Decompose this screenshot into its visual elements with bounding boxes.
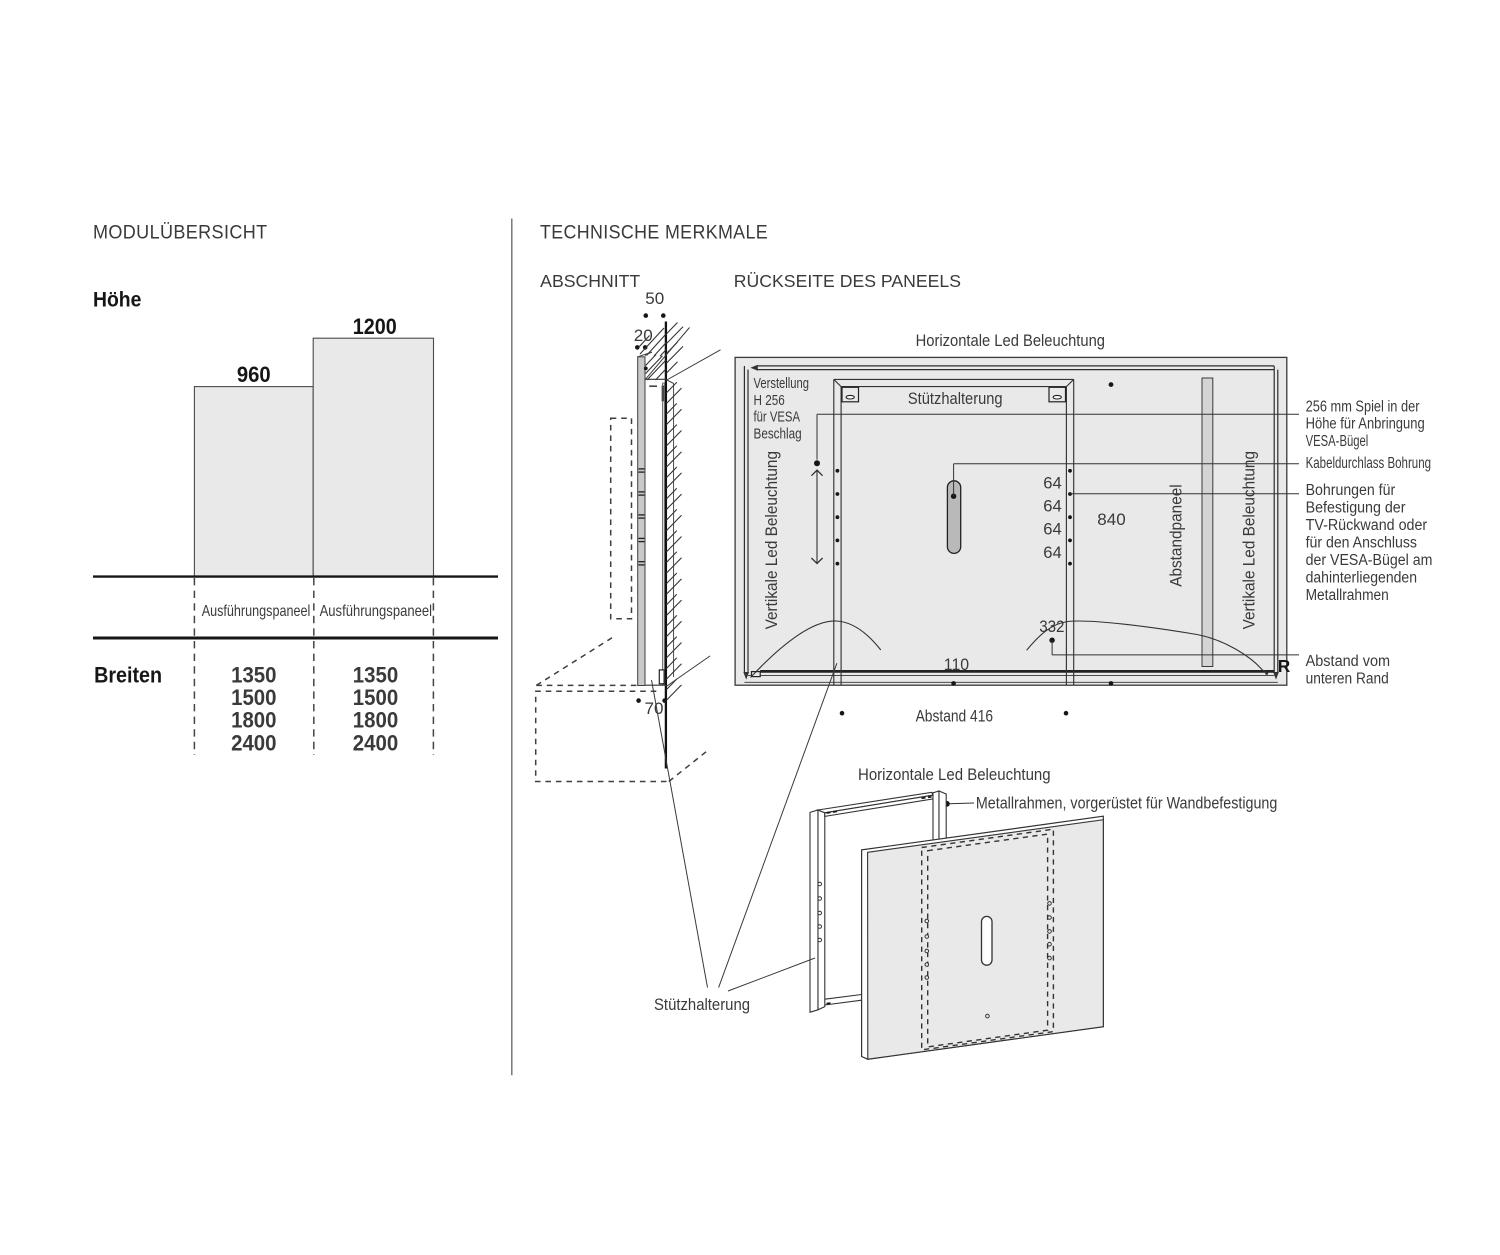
svg-text:Horizontale Led Beleuchtung: Horizontale Led Beleuchtung: [916, 332, 1105, 350]
svg-text:1800: 1800: [231, 708, 276, 733]
svg-text:Metallrahmen, vorgerüstet für: Metallrahmen, vorgerüstet für Wandbefest…: [976, 795, 1277, 813]
svg-text:64: 64: [1043, 498, 1062, 516]
svg-text:unteren Rand: unteren Rand: [1306, 670, 1389, 687]
svg-text:Breiten: Breiten: [94, 663, 162, 688]
svg-text:64: 64: [1043, 474, 1062, 492]
svg-text:RÜCKSEITE DES PANEELS: RÜCKSEITE DES PANEELS: [734, 271, 961, 291]
svg-text:70: 70: [645, 700, 664, 718]
svg-text:1200: 1200: [353, 314, 397, 339]
svg-text:Befestigung der: Befestigung der: [1306, 500, 1406, 517]
svg-text:50: 50: [645, 290, 664, 308]
svg-text:Vertikale Led Beleuchtung: Vertikale Led Beleuchtung: [763, 451, 781, 629]
svg-text:dahinterliegenden: dahinterliegenden: [1306, 570, 1417, 587]
svg-text:1350: 1350: [353, 663, 398, 688]
svg-text:Ausführungspaneel: Ausführungspaneel: [202, 603, 311, 620]
svg-text:64: 64: [1043, 544, 1062, 562]
svg-text:für den Anschluss: für den Anschluss: [1306, 535, 1418, 552]
svg-text:64: 64: [1043, 521, 1062, 539]
svg-text:Stützhalterung: Stützhalterung: [908, 390, 1003, 408]
svg-text:840: 840: [1097, 511, 1125, 529]
svg-text:für VESA: für VESA: [754, 410, 801, 426]
svg-text:TV-Rückwand oder: TV-Rückwand oder: [1306, 517, 1428, 534]
svg-text:MODULÜBERSICHT: MODULÜBERSICHT: [93, 222, 268, 244]
svg-text:2400: 2400: [353, 730, 398, 755]
svg-text:Höhe: Höhe: [93, 288, 141, 312]
svg-text:Höhe für Anbringung: Höhe für Anbringung: [1306, 416, 1425, 433]
svg-text:Abstand 416: Abstand 416: [916, 707, 994, 725]
svg-text:TECHNISCHE MERKMALE: TECHNISCHE MERKMALE: [540, 222, 768, 244]
svg-text:Horizontale Led Beleuchtung: Horizontale Led Beleuchtung: [858, 766, 1051, 784]
svg-text:der VESA-Bügel am: der VESA-Bügel am: [1306, 552, 1433, 569]
svg-text:1800: 1800: [353, 708, 398, 733]
svg-text:960: 960: [237, 362, 271, 387]
svg-text:2400: 2400: [231, 730, 276, 755]
svg-text:1350: 1350: [231, 663, 276, 688]
svg-text:Verstellung: Verstellung: [754, 376, 810, 392]
svg-text:Ausführungspaneel: Ausführungspaneel: [320, 603, 432, 620]
svg-text:256 mm Spiel in der: 256 mm Spiel in der: [1306, 398, 1420, 415]
svg-text:Stützhalterung: Stützhalterung: [654, 996, 750, 1014]
svg-text:Abstand vom: Abstand vom: [1306, 653, 1391, 670]
svg-text:1500: 1500: [353, 685, 398, 710]
svg-text:Metallrahmen: Metallrahmen: [1306, 587, 1389, 604]
svg-text:Bohrungen für: Bohrungen für: [1306, 482, 1396, 499]
svg-text:R: R: [1278, 656, 1291, 676]
svg-text:Kabeldurchlass Bohrung: Kabeldurchlass Bohrung: [1306, 455, 1431, 472]
svg-text:Vertikale Led Beleuchtung: Vertikale Led Beleuchtung: [1241, 451, 1259, 629]
svg-text:Abstandpaneel: Abstandpaneel: [1167, 484, 1185, 587]
svg-text:1500: 1500: [231, 685, 276, 710]
svg-text:110: 110: [944, 656, 969, 674]
svg-text:H 256: H 256: [754, 393, 785, 409]
svg-text:ABSCHNITT: ABSCHNITT: [540, 271, 640, 291]
svg-text:Beschlag: Beschlag: [754, 426, 802, 442]
svg-text:VESA-Bügel: VESA-Bügel: [1306, 433, 1369, 450]
